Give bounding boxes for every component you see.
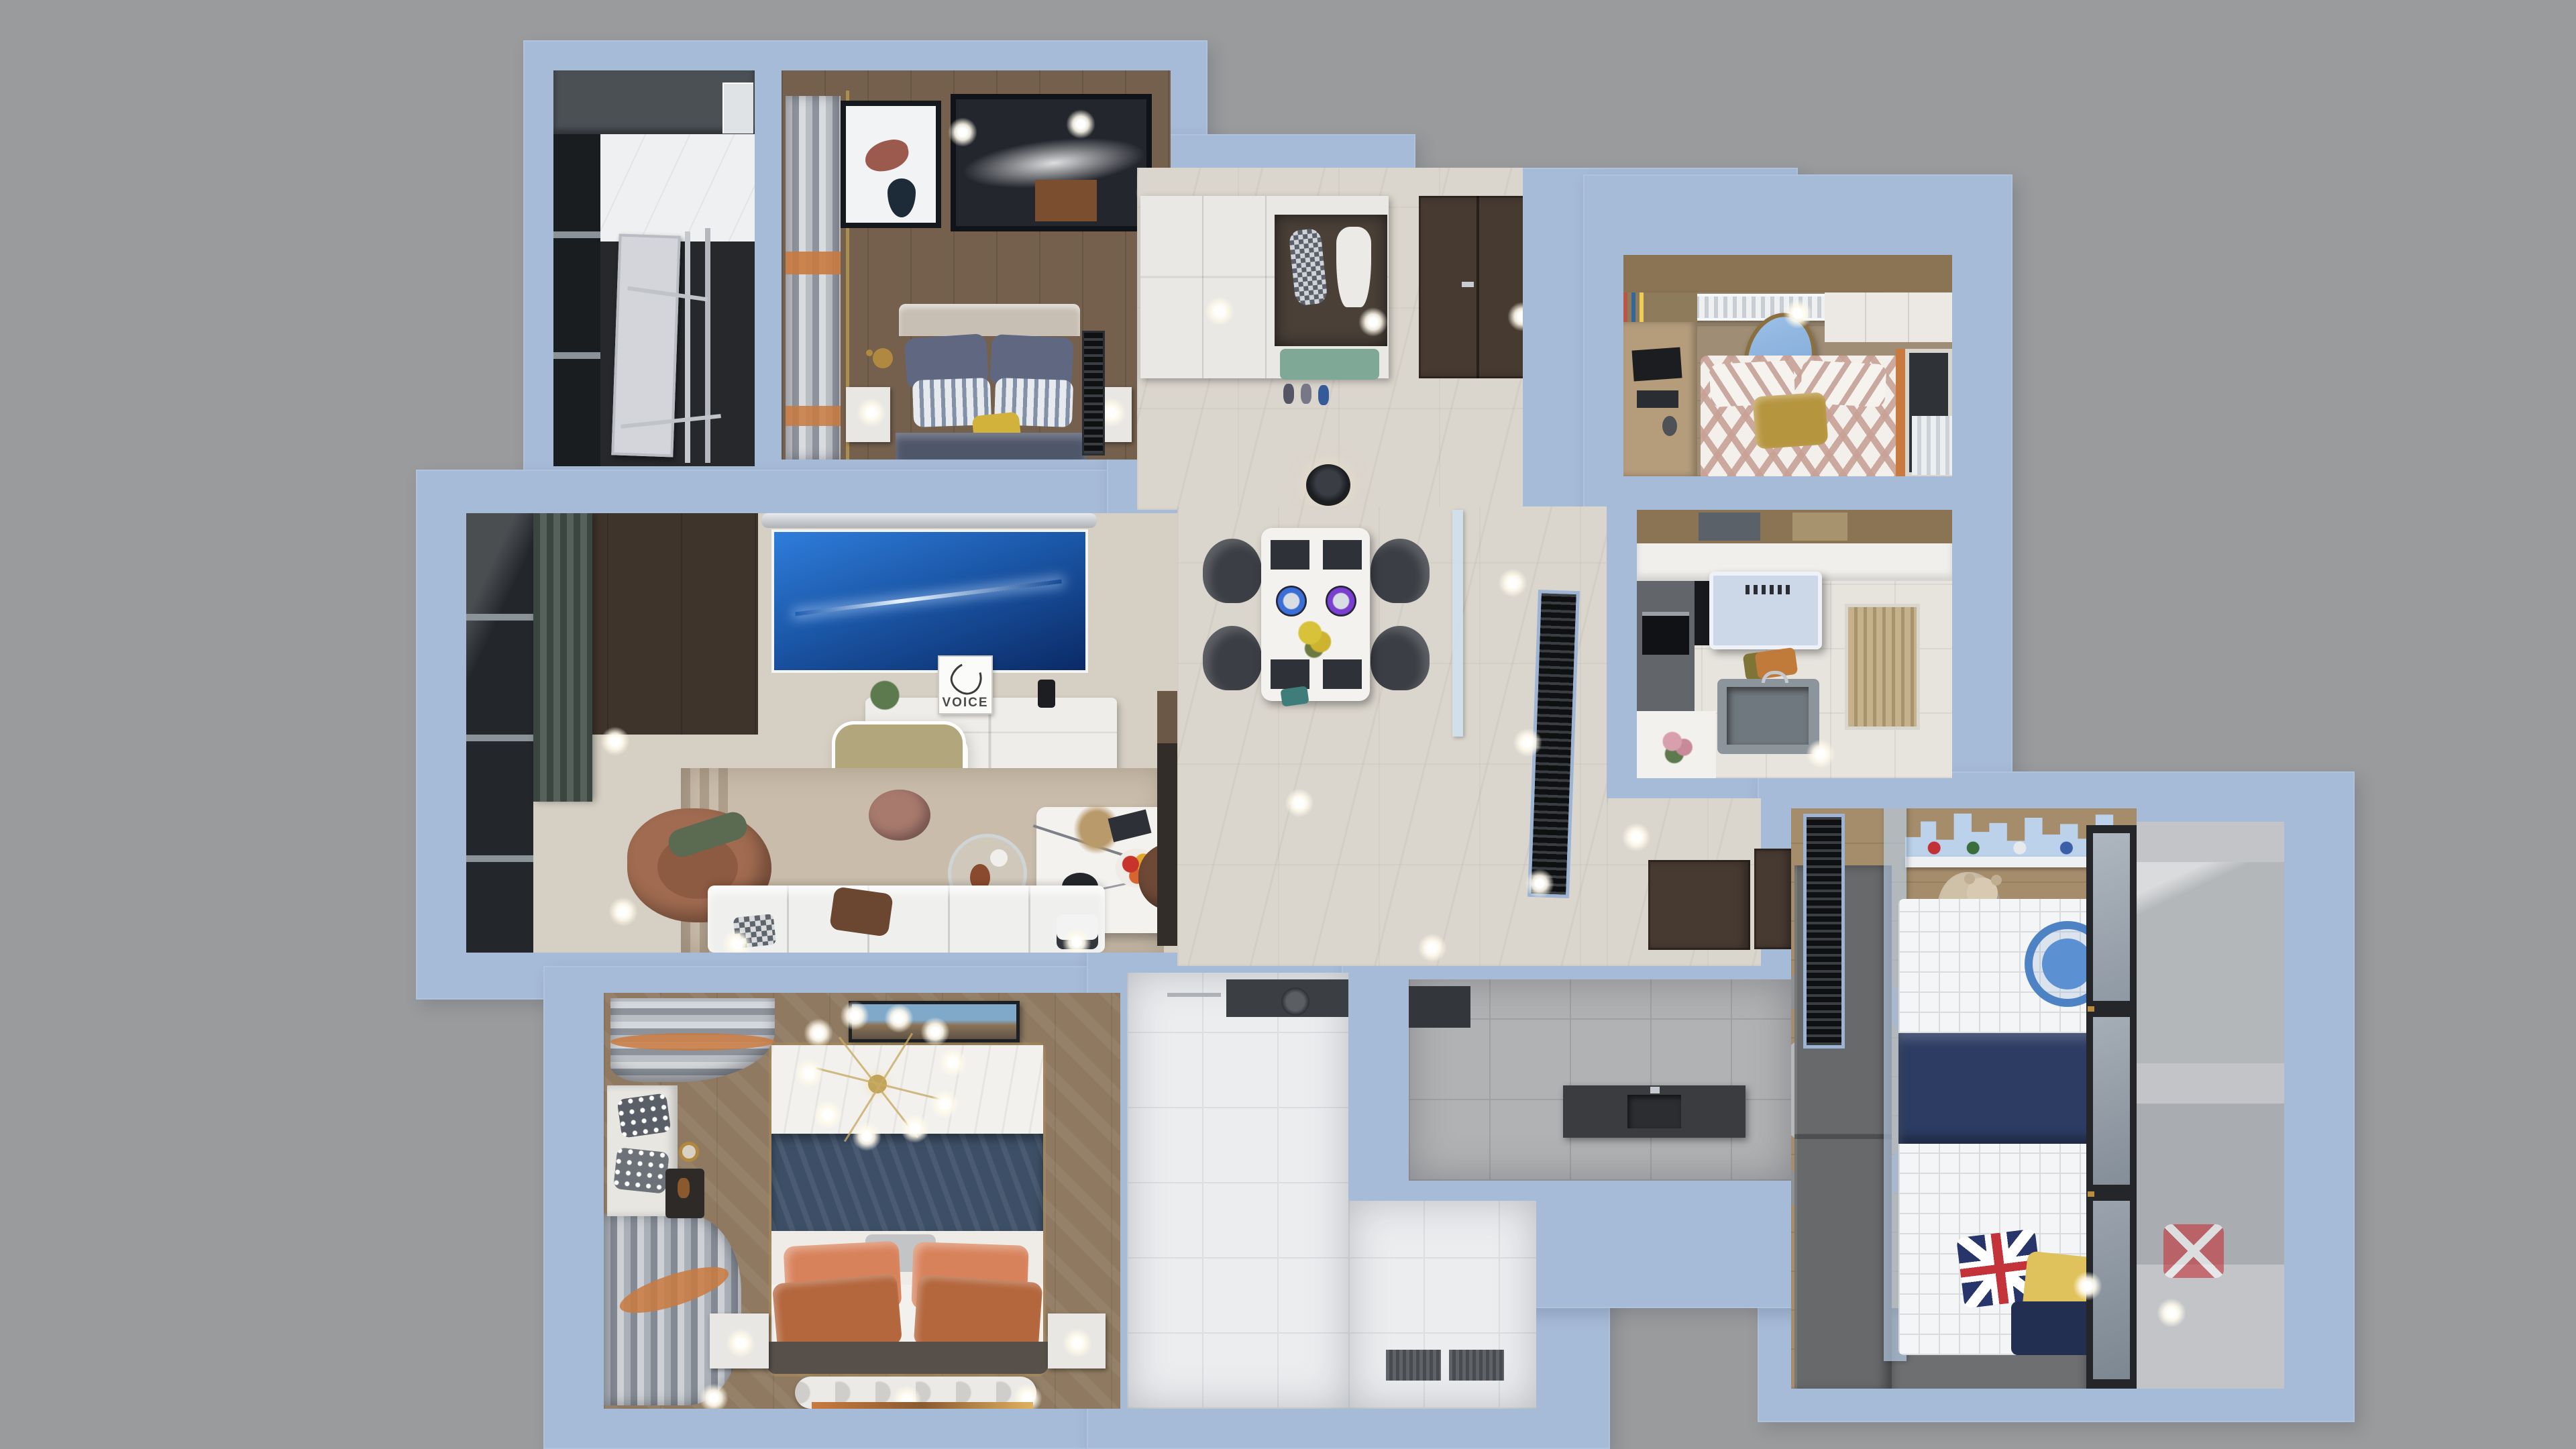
- voice-line-art: [946, 657, 987, 700]
- plate-blue: [1276, 586, 1307, 616]
- floor-art-leaning: [812, 1402, 1033, 1409]
- kitchen-door: [1754, 849, 1793, 949]
- downlight: [600, 727, 630, 756]
- window-glass: [2093, 1017, 2130, 1185]
- art-frame-right: [951, 94, 1152, 231]
- projector-housing: [761, 513, 1097, 528]
- downlight: [699, 1383, 729, 1409]
- kids-balcony: [2137, 822, 2284, 1389]
- decor-tray: [665, 1169, 704, 1218]
- dining-chair: [1371, 626, 1430, 690]
- bed2-duvet: [896, 433, 1086, 460]
- entry-shoes: [1283, 384, 1294, 404]
- shelf-toys: [1919, 839, 2113, 857]
- laundry-window-mullion: [553, 231, 600, 238]
- sink-basin: [1727, 687, 1809, 745]
- dining-table: [1261, 528, 1370, 701]
- bulb: [900, 1114, 930, 1143]
- laundry-window-band: [553, 134, 600, 466]
- downlight: [1285, 788, 1314, 818]
- pouf-rose: [869, 790, 930, 841]
- kids-table-top: [2042, 938, 2093, 989]
- laundry-ceiling-panel: [600, 134, 755, 241]
- shower-head: [1281, 987, 1309, 1016]
- seat-pillow-dot: [613, 1147, 669, 1194]
- entry-door-handle: [1462, 282, 1474, 287]
- kitchen-upper-box-wood: [1792, 513, 1847, 541]
- screen-light-streak: [795, 580, 1062, 616]
- dining-area: [1177, 506, 1607, 966]
- bath-shower-dark: [1409, 986, 1470, 1028]
- downlight: [1417, 933, 1447, 963]
- kitchen-island: [1637, 711, 1716, 778]
- bulb: [938, 1048, 967, 1077]
- dining-chair: [1203, 626, 1262, 690]
- drying-rack-rail: [685, 231, 690, 463]
- ac-vent: [1082, 331, 1105, 455]
- bedroom3-wardrobe-face: [1825, 292, 1952, 342]
- glass-partition: [1452, 510, 1463, 737]
- sputnik-chandelier: [798, 1006, 959, 1161]
- desk-laptop: [1631, 347, 1682, 382]
- bulb: [794, 1059, 824, 1088]
- downlight: [2073, 1271, 2102, 1301]
- corridor: [1607, 798, 1761, 966]
- downlight: [1498, 568, 1527, 598]
- bath-vanity: [1563, 1085, 1746, 1138]
- laundry-corner-shelf: [722, 83, 753, 133]
- shower-rail: [1167, 993, 1221, 997]
- art-frame-left: [841, 101, 941, 228]
- main-bathroom: [1127, 973, 1348, 1409]
- third-bedroom: [1623, 255, 1952, 476]
- lamp-glow: [857, 398, 886, 427]
- bedroom2-curtain: [786, 96, 841, 460]
- island-flowers: [1656, 726, 1697, 765]
- kitchen-upper-box-gray: [1699, 513, 1760, 541]
- bulb: [840, 1001, 869, 1030]
- desk-mouse: [1662, 416, 1677, 436]
- kitchen-window-blinds: [1845, 604, 1920, 730]
- bedroom3-desk: [1623, 322, 1697, 476]
- art-blob: [862, 137, 912, 175]
- window-mullion: [466, 855, 533, 862]
- entry-door: [1419, 196, 1523, 378]
- entry-hall: [1137, 168, 1523, 510]
- vanity-sink: [1627, 1095, 1681, 1128]
- bedroom2-curtain-orange-band: [786, 252, 841, 274]
- bedroom3-curtain-orange: [1896, 349, 1905, 476]
- art-brown-block: [1035, 180, 1097, 221]
- balcony-reflection-pillow: [2163, 1224, 2224, 1278]
- white-vase: [990, 849, 1008, 867]
- flowers-yellow: [1293, 615, 1335, 659]
- window-mullion: [466, 614, 533, 621]
- downlight: [1062, 928, 1091, 953]
- entry-door-seam: [1477, 196, 1479, 378]
- hanging-coat-plaid: [1288, 228, 1328, 306]
- bulb: [852, 1122, 881, 1151]
- downlight: [1621, 822, 1651, 852]
- bed3-pillow-gold: [1752, 392, 1828, 449]
- shower-set: [1226, 979, 1348, 1017]
- teal-napkin: [1280, 686, 1309, 706]
- second-bedroom: [782, 70, 1171, 460]
- bedroom3-curtain-white: [1912, 416, 1952, 475]
- console-decor-black: [1038, 680, 1055, 708]
- vanity-faucet: [1650, 1087, 1660, 1093]
- bulb: [813, 1100, 843, 1130]
- bedroom2-curtain-orange-band: [786, 406, 841, 426]
- desk-keyboard: [1637, 390, 1678, 408]
- hanging-dress-white: [1336, 227, 1371, 307]
- bulb: [804, 1018, 833, 1048]
- living-window-band: [466, 513, 533, 953]
- voice-card-label: VOICE: [939, 696, 991, 710]
- entry-closet: [1140, 196, 1389, 378]
- built-in-oven: [1642, 612, 1689, 655]
- seat-pillow-dot: [616, 1093, 671, 1138]
- dining-chair: [1371, 539, 1430, 603]
- living-room: VOICE: [466, 513, 1177, 953]
- gray-bathroom: [1409, 979, 1791, 1181]
- placemat: [1271, 540, 1309, 570]
- wall-lamp-gold: [873, 348, 893, 368]
- hood-vent-buttons: [1746, 585, 1790, 594]
- dining-chair: [1203, 539, 1262, 603]
- window-handle: [2088, 1006, 2094, 1012]
- window-glass: [2093, 833, 2130, 1001]
- living-curtain-green: [533, 513, 592, 802]
- closet-light: [1205, 297, 1234, 326]
- sofa-throw-brown: [829, 886, 894, 937]
- downlight: [1358, 307, 1388, 337]
- downlight: [1525, 869, 1554, 898]
- bathroom-door-leaf: [1648, 860, 1750, 950]
- master-bedroom: [604, 993, 1120, 1409]
- main-bathroom-lower: [1348, 1201, 1536, 1409]
- kids-ac-vent: [1803, 814, 1845, 1049]
- kitchen: [1637, 510, 1952, 778]
- floorplan-render: VOICE: [0, 0, 2576, 1449]
- lamp-glow: [1063, 1328, 1092, 1358]
- kids-bedroom: [1791, 808, 2137, 1389]
- curtain-orange-band: [610, 1033, 775, 1051]
- kitchen-sink: [1717, 679, 1819, 754]
- gold-round-mirror: [679, 1142, 699, 1162]
- downlight: [1806, 739, 1835, 769]
- bed3: [1701, 356, 1902, 476]
- dining-pendant: [1306, 464, 1350, 506]
- bulb: [930, 1089, 959, 1119]
- placemat: [1323, 540, 1362, 570]
- master-headboard: [767, 1342, 1048, 1374]
- master-curtain-top: [610, 998, 775, 1082]
- downlight: [1513, 728, 1542, 757]
- bedroom3-wardrobe-top: [1623, 255, 1952, 292]
- downlight: [2157, 1298, 2186, 1328]
- projector-screen: [771, 529, 1088, 673]
- laundry-window-mullion: [553, 352, 600, 359]
- curtain-orange-band: [615, 1258, 733, 1322]
- chandelier-arm: [816, 1067, 940, 1100]
- teddy-ear: [1964, 873, 1975, 884]
- downlight: [1066, 109, 1095, 139]
- art-teardrop: [888, 178, 916, 217]
- kids-bed-navy-band: [1898, 1033, 2100, 1144]
- bedroom3-shelf-books: [1623, 292, 1697, 322]
- drying-rack-rail: [705, 228, 710, 463]
- floor-drain: [1449, 1350, 1504, 1381]
- master-curtain-bottom: [604, 1214, 741, 1405]
- bulb: [884, 1004, 914, 1033]
- downlight: [948, 117, 977, 147]
- downlight: [1783, 299, 1813, 329]
- laundry-room: [553, 70, 755, 466]
- range-hood: [1709, 572, 1822, 649]
- closet-bench-green: [1280, 349, 1379, 380]
- window-mullion: [466, 735, 533, 741]
- placemat: [1323, 659, 1362, 689]
- decor-bottle: [678, 1178, 690, 1198]
- console-plant: [869, 680, 901, 714]
- kids-window: [2086, 825, 2137, 1389]
- lamp-glow: [726, 1328, 755, 1358]
- voice-card: VOICE: [938, 655, 993, 714]
- floor-drain: [1386, 1350, 1441, 1381]
- placemat: [1271, 659, 1309, 689]
- downlight: [608, 897, 638, 926]
- plate-purple: [1326, 586, 1356, 616]
- balcony-reflection: [2137, 862, 2284, 1063]
- bulb: [920, 1017, 950, 1046]
- bed2-headboard: [899, 304, 1080, 336]
